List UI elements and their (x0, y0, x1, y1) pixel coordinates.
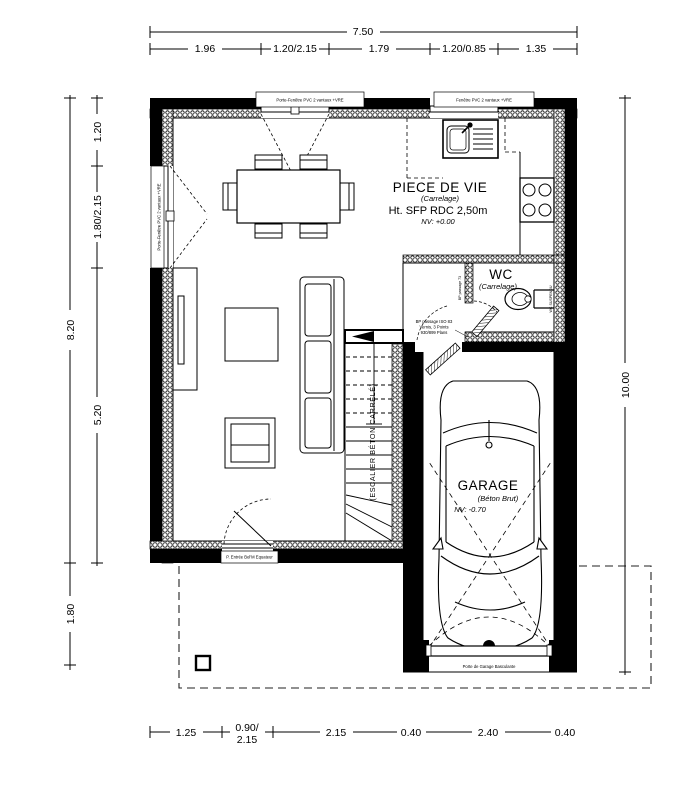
dim-bottom (150, 726, 577, 738)
chair (300, 155, 327, 169)
wall-garage-right (554, 352, 577, 672)
living-room-finish: (Carrelage) (421, 194, 459, 203)
wc-door-spec-label: BP passage 73 (458, 276, 462, 300)
left-french-door-swing (170, 166, 207, 268)
kitchen-sink (443, 120, 498, 158)
passage-label-line1: BP passage ISO 83 (416, 319, 453, 324)
dining-table (237, 170, 340, 223)
garage-door-post-right (547, 645, 552, 656)
wall-wc-top (403, 255, 565, 263)
wall-garage-left (403, 342, 423, 672)
chair (255, 224, 282, 238)
garage-room-finish: (Béton Brut) (478, 494, 519, 503)
wall-wc-west (465, 263, 473, 303)
left-french-door-meeting-stile (166, 211, 174, 221)
floor-plan-drawing: (ESCALIER BÉTON CARRELÉ) WC SUSPENDU BP … (0, 0, 700, 800)
chair (340, 183, 354, 210)
kitchen-window-label: Fenêtre PVC 2 vantaux +VRE (456, 98, 512, 103)
dim-top-seg1: 1.96 (195, 43, 216, 55)
entry-door-label: P. Entrée Bel'M Equateur (226, 555, 273, 560)
entry-door-swing-arc (224, 499, 271, 544)
floor-plan-page: (ESCALIER BÉTON CARRELÉ) WC SUSPENDU BP … (0, 0, 700, 800)
toilet (505, 289, 554, 310)
porch-post (196, 656, 210, 670)
garage-room-name: GARAGE (458, 478, 519, 493)
coffee-table (225, 308, 278, 361)
dim-bottom-seg3: 2.15 (326, 727, 347, 739)
dim-bottom-seg5: 2.40 (478, 727, 499, 739)
wall-stair-side (392, 344, 403, 541)
top-french-door-label: Porte-Fenêtre PVC 2 vantaux +VRE (276, 98, 343, 103)
wall-garage-stub-right (549, 640, 577, 672)
wall-top-hatch (150, 109, 577, 118)
dim-left-seg2: 1.80/2.15 (92, 195, 104, 239)
dim-top-seg3: 1.79 (369, 43, 390, 55)
dining-set (223, 155, 354, 238)
chair (300, 224, 327, 238)
dim-left-lower-label: 1.80 (65, 604, 77, 625)
left-french-door-label: Porte-Fenêtre PVC 2 vantaux +VRE (157, 183, 162, 250)
chair (223, 183, 237, 210)
wall-garage-stub-left (403, 640, 429, 672)
passage-label-line2: Vernis, 3 Points (419, 325, 448, 330)
living-room-level: NV: +0.00 (421, 217, 455, 226)
passage-door-label: BP passage ISO 83 Vernis, 3 Points 930/8… (416, 319, 453, 335)
dim-bottom-seg4: 0.40 (401, 727, 422, 739)
sofa (300, 277, 344, 453)
stair-label: (ESCALIER BÉTON CARRELÉ) (368, 383, 377, 500)
dim-left-seg3: 5.20 (92, 405, 104, 426)
dim-right-total-label: 10.00 (620, 372, 632, 398)
wall-right-hatch (554, 109, 565, 352)
living-room-height: Ht. SFP RDC 2,50m (389, 205, 488, 217)
tv (178, 296, 184, 364)
dim-bottom-seg6: 0.40 (555, 727, 576, 739)
chair (255, 155, 282, 169)
dim-left-outer (64, 95, 76, 670)
dim-top-seg5: 1.35 (526, 43, 547, 55)
dim-left-seg1: 1.20 (92, 122, 104, 143)
dim-bottom-seg2a: 0.90/ (235, 722, 258, 734)
armchair (225, 418, 275, 468)
living-room-name: PIECE DE VIE (393, 180, 488, 195)
dim-top-seg2: 1.20/2.15 (273, 43, 317, 55)
garage-floor (400, 340, 577, 672)
garage-door-post-left (426, 645, 431, 656)
wall-garage-top-black-b (462, 342, 577, 352)
garage-room-level: NV: -0.70 (454, 505, 486, 514)
dim-top-seg4: 1.20/0.85 (442, 43, 486, 55)
tv-sideboard (173, 268, 197, 390)
dim-bottom-seg1: 1.25 (176, 727, 197, 739)
dim-bottom-seg2b: 2.15 (237, 734, 258, 746)
garage-door-panel (429, 646, 549, 656)
garage-door-label: Porte de Garage Basculante (463, 664, 517, 669)
wc-room-name: WC (489, 267, 513, 282)
wall-bottom-hatch (150, 541, 403, 549)
wc-room-finish: (Carrelage) (479, 282, 517, 291)
dim-left-total-label: 8.20 (65, 320, 77, 341)
kitchen-stove (520, 178, 554, 222)
passage-label-line3: 930/899 Plans (421, 330, 448, 335)
dim-top-total-label: 7.50 (353, 26, 374, 38)
dim-left-inner (91, 95, 103, 566)
wc-suspendu-label: WC SUSPENDU (549, 285, 553, 312)
